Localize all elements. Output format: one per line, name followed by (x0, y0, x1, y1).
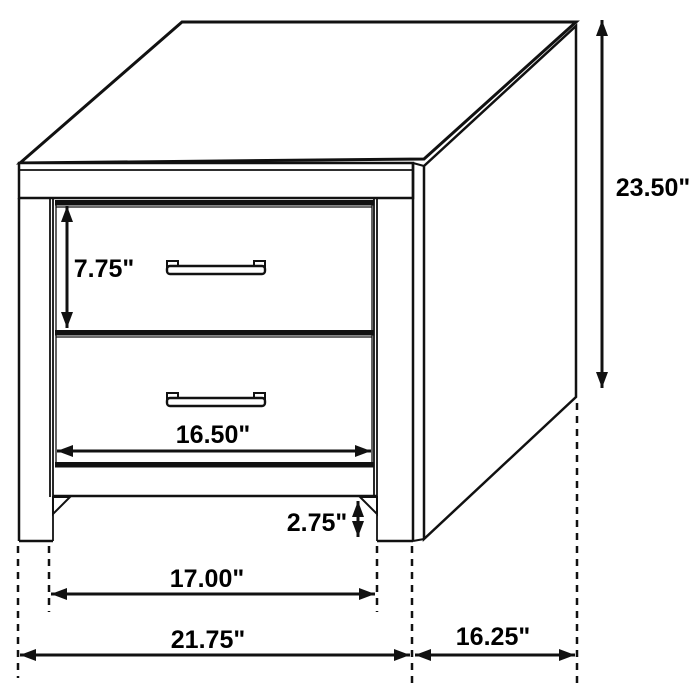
left-corner-bracket (53, 497, 70, 514)
drawer-2-handle (167, 393, 265, 406)
dim-drawer-width-label: 16.50" (176, 421, 250, 449)
dim-top-drawer-height: 7.75" (67, 206, 134, 328)
dim-side-depth: 16.25" (415, 623, 575, 655)
dim-drawer-width: 16.50" (57, 421, 371, 451)
drawer-1-handle (167, 261, 265, 274)
dimension-diagram: 23.50" 7.75" 16.50" 2.75" 17.00" 21.75" … (0, 0, 700, 700)
top-slab-front (19, 163, 413, 198)
dim-overall-height: 23.50" (602, 20, 690, 388)
handle-bar (167, 266, 265, 274)
opening-top-gap (55, 200, 374, 206)
dim-overall-height-label: 23.50" (616, 174, 690, 202)
dim-top-drawer-height-label: 7.75" (74, 255, 135, 283)
dim-floor-clearance-label: 2.75" (287, 509, 348, 537)
dim-side-depth-label: 16.25" (456, 623, 530, 651)
dim-overall-width-label: 21.75" (171, 626, 245, 654)
handle-bar (167, 398, 265, 406)
dim-overall-width: 21.75" (20, 626, 410, 655)
dim-floor-clearance: 2.75" (287, 501, 358, 537)
right-corner-bracket (360, 497, 377, 514)
dim-inner-leg-span-label: 17.00" (170, 565, 244, 593)
drawer-bottom-gap (55, 462, 374, 468)
dim-inner-leg-span: 17.00" (51, 565, 375, 594)
right-leg-side-bottom (413, 539, 424, 541)
drawer-divider-gap (55, 330, 374, 336)
top-slab-corner-edge (413, 163, 424, 166)
